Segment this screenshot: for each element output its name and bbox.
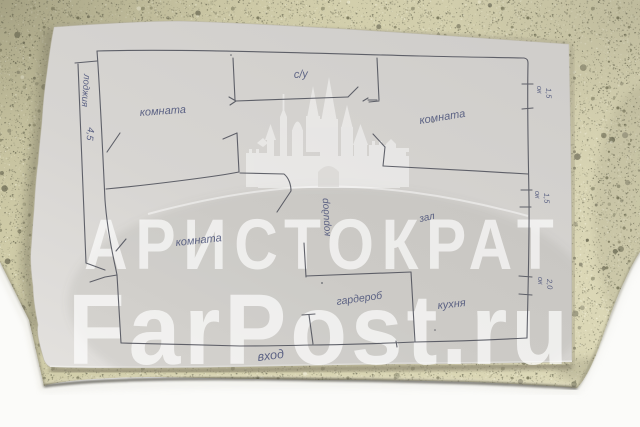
svg-text:ок: ок [535,86,544,94]
svg-text:коридор: коридор [320,197,333,236]
svg-text:1,5: 1,5 [544,88,553,100]
svg-text:1,5: 1,5 [542,193,551,205]
svg-text:FarPost.ru: FarPost.ru [68,275,572,386]
svg-text:2,0: 2,0 [545,278,554,291]
svg-text:с/у: с/у [294,68,310,81]
svg-text:ок: ок [536,277,545,285]
svg-text:ок: ок [533,191,542,199]
svg-text:4,5: 4,5 [84,127,96,142]
svg-text:лоджия: лоджия [79,73,92,107]
